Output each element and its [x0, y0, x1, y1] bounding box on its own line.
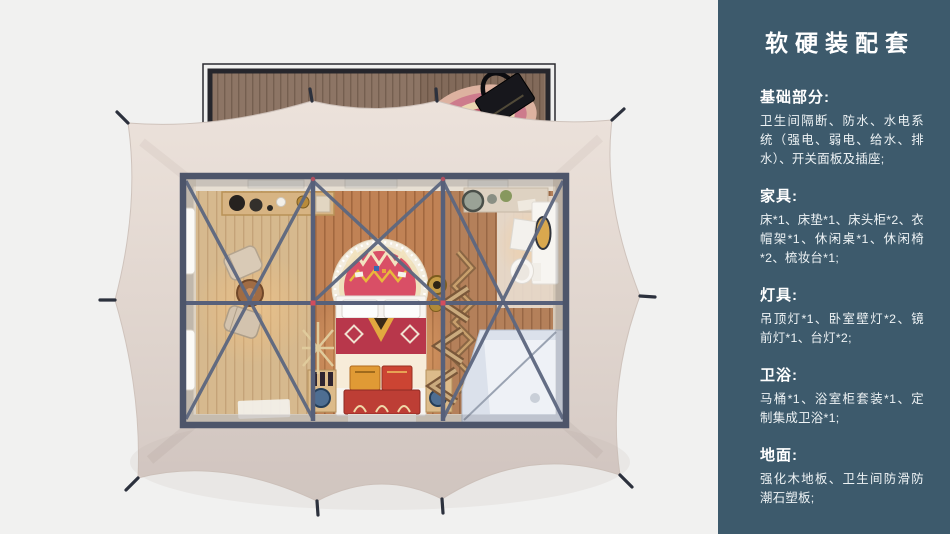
section-heading: 地面:: [760, 444, 924, 465]
panel-title: 软硬装配套: [756, 24, 924, 58]
section-lighting: 灯具: 吊顶灯*1、卧室壁灯*2、镜前灯*1、台灯*2;: [760, 284, 924, 348]
tent-room-render: [0, 0, 718, 534]
console-table: [222, 192, 334, 215]
section-body: 床*1、床垫*1、床头柜*2、衣帽架*1、休闲桌*1、休闲椅*2、梳妆台*1;: [760, 211, 924, 268]
section-basics: 基础部分: 卫生间隔断、防水、水电系统（强电、弱电、给水、排水）、开关面板及插座…: [760, 86, 924, 169]
trunk: [382, 366, 412, 390]
section-heading: 卫浴:: [760, 364, 924, 385]
section-body: 马桶*1、浴室柜套装*1、定制集成卫浴*1;: [760, 390, 924, 428]
section-flooring: 地面: 强化木地板、卫生间防滑防潮石塑板;: [760, 444, 924, 508]
section-body: 吊顶灯*1、卧室壁灯*2、镜前灯*1、台灯*2;: [760, 310, 924, 348]
spec-panel: 软硬装配套 基础部分: 卫生间隔断、防水、水电系统（强电、弱电、给水、排水）、开…: [718, 0, 950, 534]
slide: 软硬装配套 基础部分: 卫生间隔断、防水、水电系统（强电、弱电、给水、排水）、开…: [0, 0, 950, 534]
section-body: 强化木地板、卫生间防滑防潮石塑板;: [760, 470, 924, 508]
section-heading: 灯具:: [760, 284, 924, 305]
section-body: 卫生间隔断、防水、水电系统（强电、弱电、给水、排水）、开关面板及插座;: [760, 112, 924, 169]
vanity-chair: [510, 219, 536, 252]
section-furniture: 家具: 床*1、床垫*1、床头柜*2、衣帽架*1、休闲桌*1、休闲椅*2、梳妆台…: [760, 185, 924, 268]
section-bathroom: 卫浴: 马桶*1、浴室柜套装*1、定制集成卫浴*1;: [760, 364, 924, 428]
floorplan-illustration: [0, 0, 718, 534]
trunk: [350, 366, 380, 390]
section-heading: 家具:: [760, 185, 924, 206]
bed: [336, 296, 426, 416]
shower: [462, 330, 563, 422]
section-heading: 基础部分:: [760, 86, 924, 107]
